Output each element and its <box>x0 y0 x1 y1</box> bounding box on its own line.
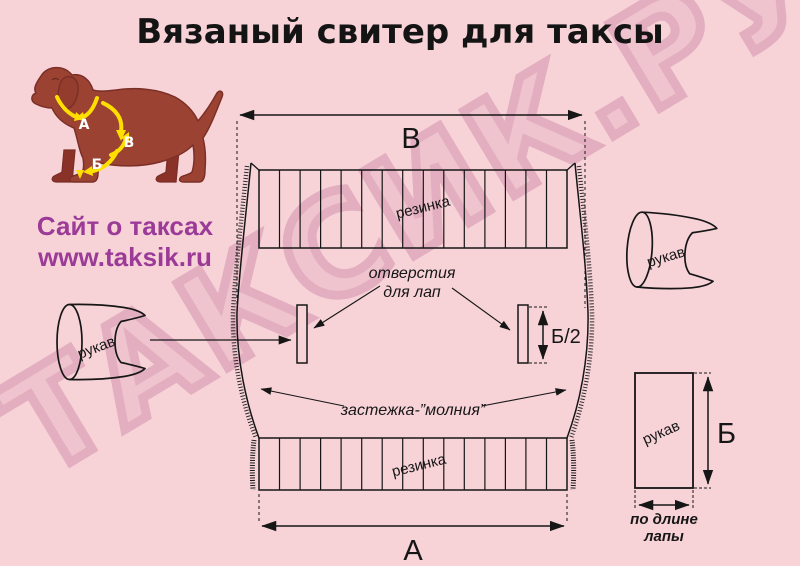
sleeve-flat-piece: рукав Б по длине лапы <box>630 373 736 545</box>
openings-pointer-right <box>452 288 510 330</box>
zipper-label: застежка-”молния” <box>340 402 486 419</box>
ribbing-label-bottom: резинка <box>390 451 448 481</box>
flat-width-label-line2: лапы <box>643 528 684 545</box>
stitch-texture-left <box>233 166 256 438</box>
sleeve-tube-left: рукав <box>57 304 145 379</box>
paw-opening-right <box>518 305 528 363</box>
openings-label-line2: для лап <box>383 284 441 301</box>
dog-measure-v: В <box>124 135 135 151</box>
sleeve-flat-label: рукав <box>640 417 682 448</box>
flat-width-label-line1: по длине <box>630 511 698 528</box>
dimension-label-flat-height: Б <box>717 418 736 450</box>
sleeve-tube-right: рукав <box>624 211 717 292</box>
dachshund-illustration: А В Б <box>32 68 223 182</box>
dog-measure-a: А <box>79 117 90 133</box>
dimension-label-opening: Б/2 <box>551 326 581 348</box>
sweater-pattern-diagram: А В Б В <box>0 0 800 566</box>
stitch-texture-right <box>571 166 592 438</box>
stitch-texture-bottom-left <box>252 440 254 490</box>
poster: ТАКСИК.РУ Вязаный свитер для таксы Сайт … <box>0 0 800 566</box>
dog-measure-b: Б <box>92 157 103 173</box>
dimension-label-top: В <box>401 123 420 155</box>
paw-opening-left <box>297 305 307 363</box>
dimension-label-bottom: А <box>403 535 423 566</box>
sleeve-right-label: рукав <box>645 243 687 271</box>
stitch-texture-bottom-right <box>572 440 574 490</box>
body-edge-left <box>237 163 259 438</box>
zipper-pointer-left <box>261 389 344 406</box>
openings-pointer-left <box>314 286 380 328</box>
body-pattern: В <box>150 115 592 566</box>
zipper-pointer-right <box>482 390 566 406</box>
openings-label-line1: отверстия <box>369 265 456 282</box>
